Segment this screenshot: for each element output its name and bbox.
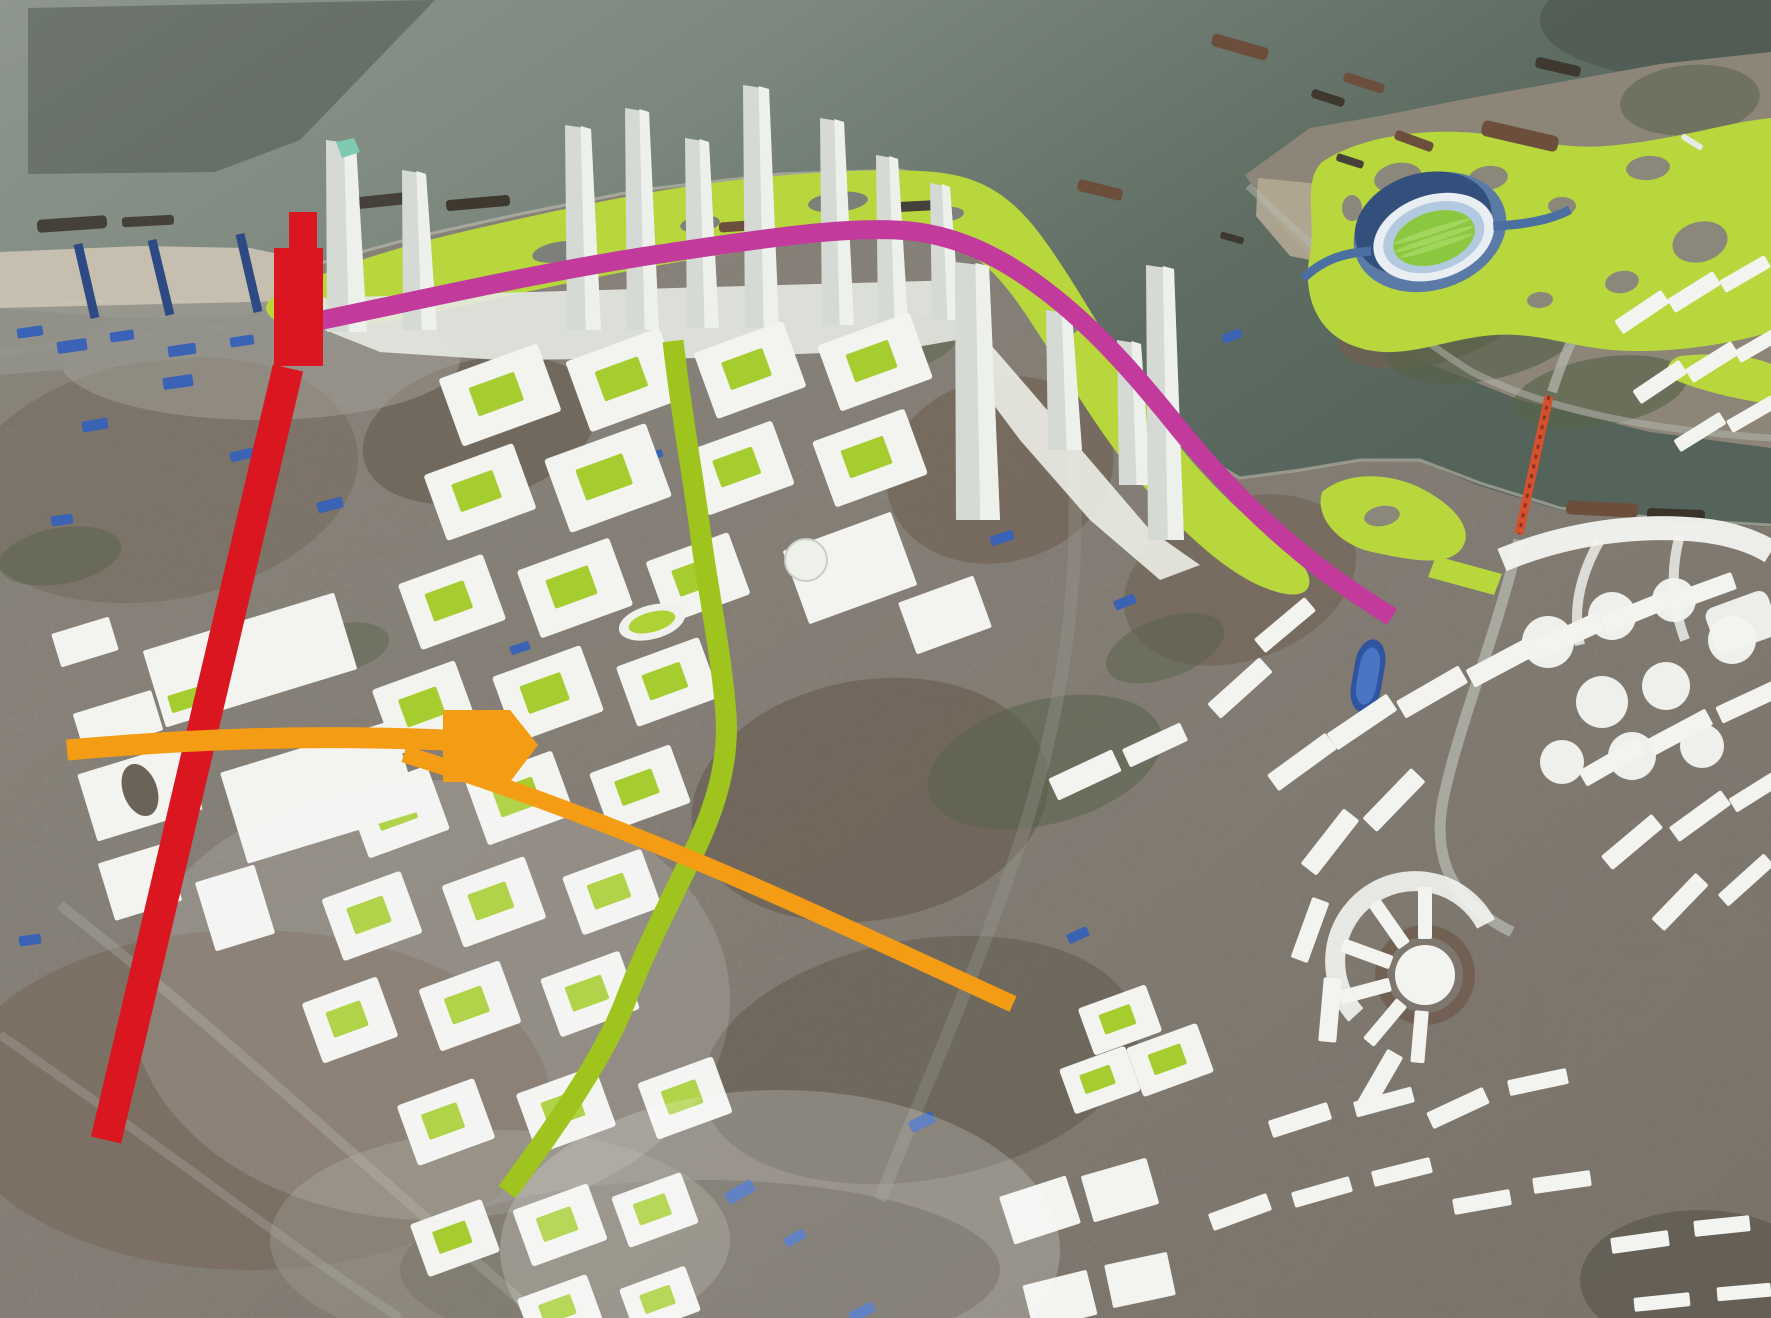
- masterplan-aerial-canvas: [0, 0, 1771, 1318]
- organic-tower: [1642, 662, 1690, 710]
- route-red-block: [274, 248, 323, 366]
- plaza-spoke-5: [1418, 887, 1432, 939]
- route-red-cap: [289, 212, 317, 250]
- scene-root: [0, 0, 1771, 1318]
- plaza-center: [1395, 945, 1455, 1005]
- organic-tower: [1576, 676, 1628, 728]
- organic-tower: [1540, 740, 1584, 784]
- route-orange-band: [67, 738, 445, 750]
- masterplan-screenshot: [0, 0, 1771, 1318]
- cylinder-tower: [785, 539, 827, 581]
